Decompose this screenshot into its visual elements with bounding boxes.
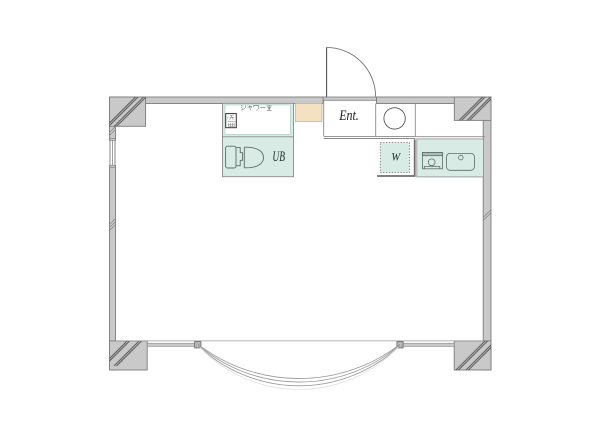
svg-text:W: W	[391, 149, 401, 163]
svg-text:Ent.: Ent.	[338, 108, 358, 124]
svg-text:UB: UB	[272, 149, 285, 165]
